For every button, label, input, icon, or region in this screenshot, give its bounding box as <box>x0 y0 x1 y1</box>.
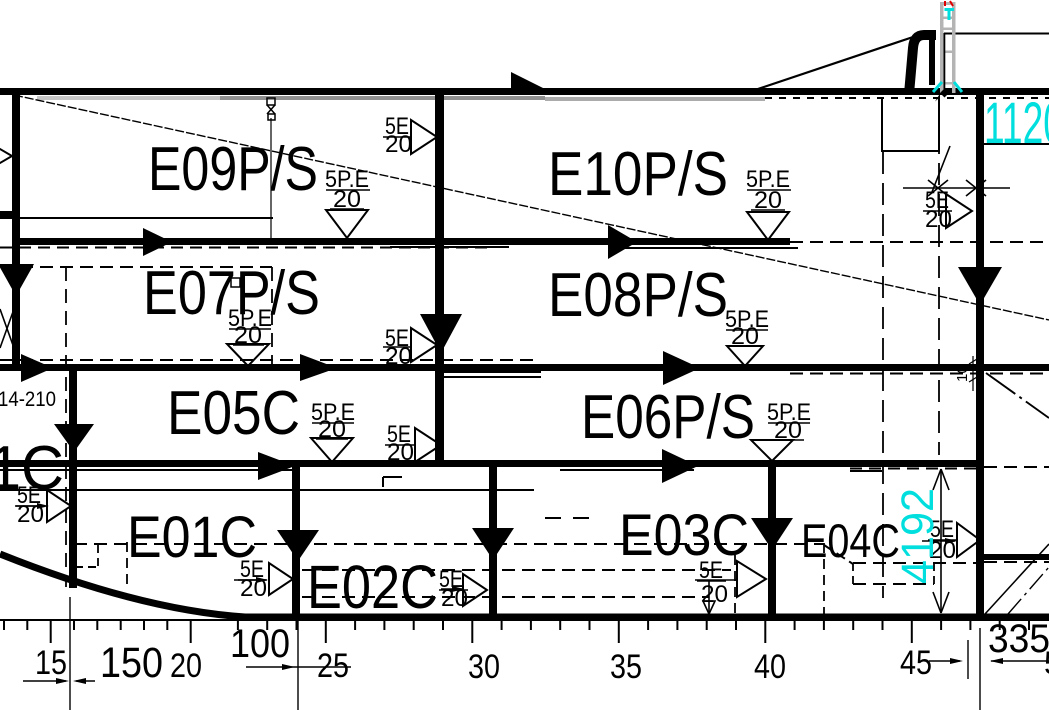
svg-text:20: 20 <box>441 585 468 612</box>
svg-text:335: 335 <box>988 617 1049 661</box>
svg-text:10: 10 <box>954 365 971 382</box>
svg-text:E09P/S: E09P/S <box>148 135 318 204</box>
svg-text:E04C: E04C <box>801 514 900 567</box>
svg-text:40: 40 <box>754 648 786 686</box>
svg-text:20: 20 <box>387 439 414 466</box>
svg-text:100: 100 <box>230 622 290 666</box>
svg-text:20: 20 <box>17 501 44 528</box>
svg-text:150: 150 <box>100 639 163 687</box>
svg-text:20: 20 <box>925 206 952 233</box>
svg-text:15: 15 <box>35 644 67 682</box>
svg-text:E02C: E02C <box>307 553 438 621</box>
svg-text:E05C: E05C <box>167 379 300 448</box>
svg-text:20: 20 <box>170 647 202 685</box>
svg-text:20: 20 <box>240 575 267 602</box>
svg-text:E06P/S: E06P/S <box>581 383 755 452</box>
svg-text:14-210: 14-210 <box>0 388 56 411</box>
svg-text:5: 5 <box>1044 645 1049 681</box>
svg-text:4192: 4192 <box>892 488 943 584</box>
svg-text:20: 20 <box>701 581 728 608</box>
svg-text:30: 30 <box>468 648 500 686</box>
svg-text:E08P/S: E08P/S <box>548 261 728 330</box>
svg-text:20: 20 <box>385 131 412 158</box>
svg-text:1120: 1120 <box>984 91 1049 156</box>
svg-text:5E: 5E <box>699 557 723 584</box>
svg-text:E03C: E03C <box>619 503 749 568</box>
svg-text:45: 45 <box>900 644 932 682</box>
svg-text:25: 25 <box>317 647 349 685</box>
svg-text:35: 35 <box>610 648 642 686</box>
svg-text:E10P/S: E10P/S <box>548 140 728 209</box>
svg-text:E01C: E01C <box>127 505 257 570</box>
